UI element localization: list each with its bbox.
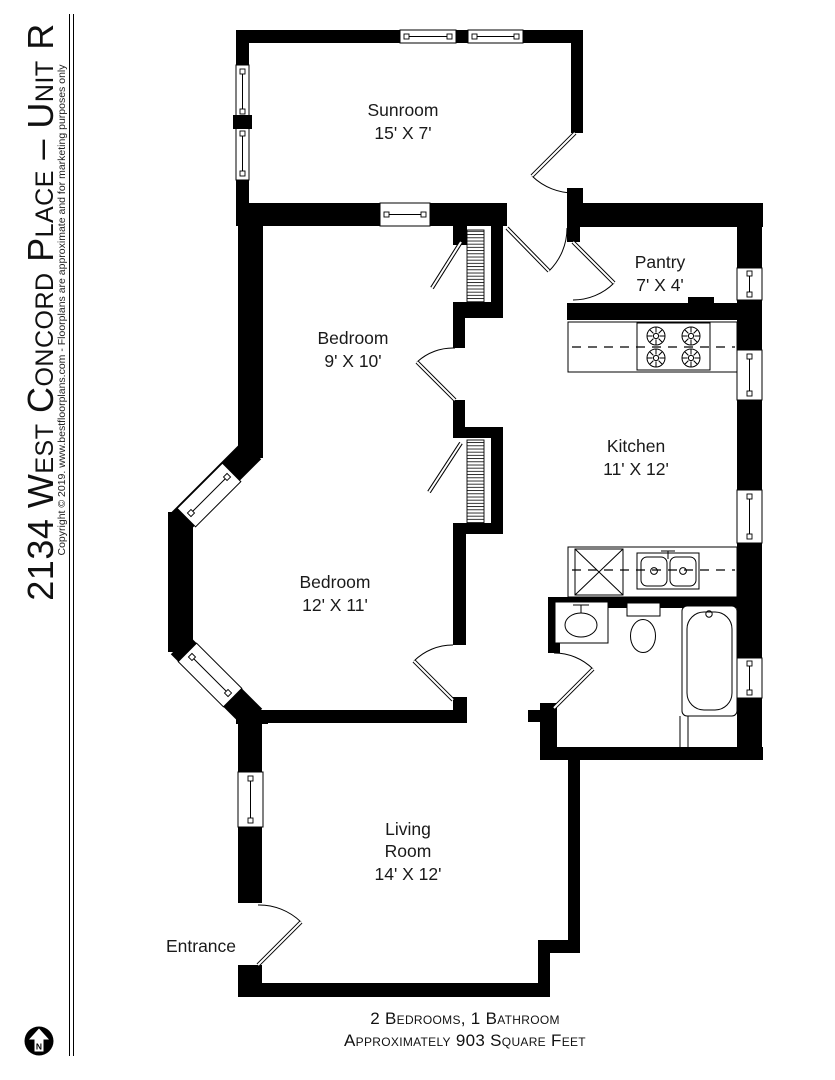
room-label-bedroom1: Bedroom bbox=[317, 328, 388, 348]
room-label-living: Room bbox=[385, 841, 432, 861]
bay-window-icon bbox=[178, 643, 242, 707]
entrance-door-icon bbox=[258, 905, 301, 965]
window-icon bbox=[737, 490, 762, 543]
floor-plan: Sunroom 15' X 7' Bedroom 9' X 10' Pantry… bbox=[0, 0, 835, 1080]
room-dims-sunroom: 15' X 7' bbox=[374, 123, 431, 143]
door-swing-icon bbox=[414, 645, 453, 700]
room-label-entrance: Entrance bbox=[166, 936, 236, 956]
walls bbox=[168, 30, 763, 997]
bathroom-sink-icon bbox=[555, 602, 608, 643]
closet-door-icon bbox=[432, 242, 461, 288]
door-swing-icon bbox=[532, 133, 575, 193]
room-label-kitchen: Kitchen bbox=[607, 436, 665, 456]
bathtub-icon bbox=[680, 606, 737, 747]
window-icon bbox=[400, 30, 456, 43]
closet-shelf-hatch bbox=[467, 440, 484, 523]
room-label-bedroom2: Bedroom bbox=[299, 572, 370, 592]
room-dims-living: 14' X 12' bbox=[374, 864, 441, 884]
room-label-pantry: Pantry bbox=[635, 252, 686, 272]
window-icon bbox=[236, 65, 249, 118]
window-icon bbox=[236, 127, 249, 180]
closet-door-icon bbox=[429, 443, 461, 492]
window-icon bbox=[737, 658, 762, 698]
room-dims-bedroom1: 9' X 10' bbox=[324, 351, 381, 371]
window-icon bbox=[468, 30, 523, 43]
bay-window-icon bbox=[177, 463, 241, 527]
room-dims-bedroom2: 12' X 11' bbox=[302, 595, 368, 615]
closet-shelf-hatch bbox=[467, 230, 484, 302]
north-label: N bbox=[36, 1042, 42, 1052]
door-swing-icon bbox=[554, 653, 593, 708]
window-icon bbox=[737, 350, 762, 400]
room-label-sunroom: Sunroom bbox=[367, 100, 438, 120]
room-dims-kitchen: 11' X 12' bbox=[603, 459, 669, 479]
door-swing-icon bbox=[573, 242, 614, 300]
window-icon bbox=[380, 203, 430, 226]
bathroom-fixtures bbox=[555, 602, 737, 747]
window-icon bbox=[238, 772, 263, 827]
toilet-icon bbox=[627, 603, 660, 653]
doors bbox=[258, 133, 614, 965]
window-icon bbox=[737, 268, 762, 300]
door-swing-icon bbox=[417, 348, 455, 400]
dishwasher-icon bbox=[575, 549, 623, 595]
footer-area: Approximately 903 Square Feet bbox=[95, 1030, 835, 1052]
north-indicator: N bbox=[25, 1027, 54, 1056]
footer-summary: 2 Bedrooms, 1 Bathroom bbox=[95, 1008, 835, 1030]
door-swing-icon bbox=[507, 228, 567, 271]
room-dims-pantry: 7' X 4' bbox=[636, 275, 684, 295]
room-label-living: Living bbox=[385, 819, 431, 839]
floorplan-page: 2134 West Concord Place – Unit R Copyrig… bbox=[0, 0, 835, 1080]
